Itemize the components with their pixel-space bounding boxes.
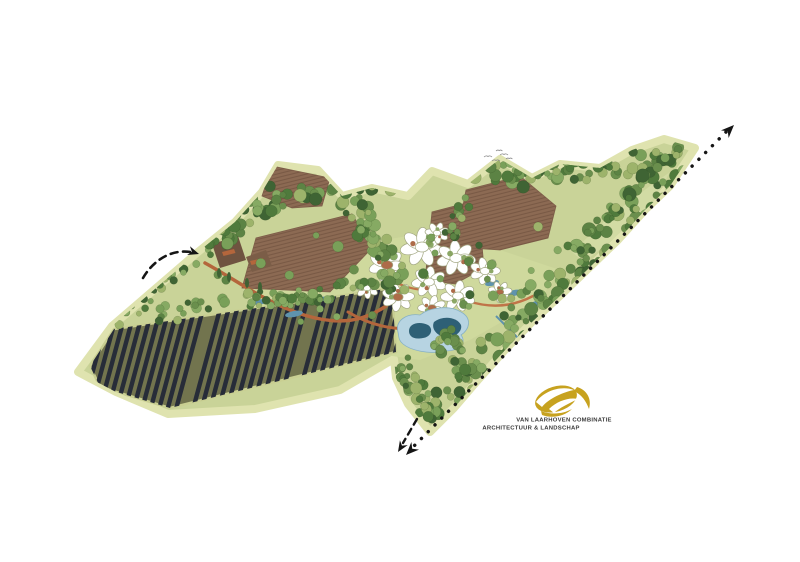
logo-line2: ARCHITECTUUR & LANDSCHAP bbox=[482, 426, 579, 432]
site-plan-page: VAN LAARHOVEN COMBINATIE ARCHITECTUUR & … bbox=[0, 0, 800, 562]
logo-line1: VAN LAARHOVEN COMBINATIE bbox=[516, 418, 611, 424]
site-plan-illustration: VAN LAARHOVEN COMBINATIE ARCHITECTUUR & … bbox=[0, 0, 800, 562]
logo-swirl-icon bbox=[532, 381, 590, 417]
dashed-arrow-icon bbox=[403, 419, 417, 443]
company-logo: VAN LAARHOVEN COMBINATIE ARCHITECTUUR & … bbox=[482, 381, 611, 432]
